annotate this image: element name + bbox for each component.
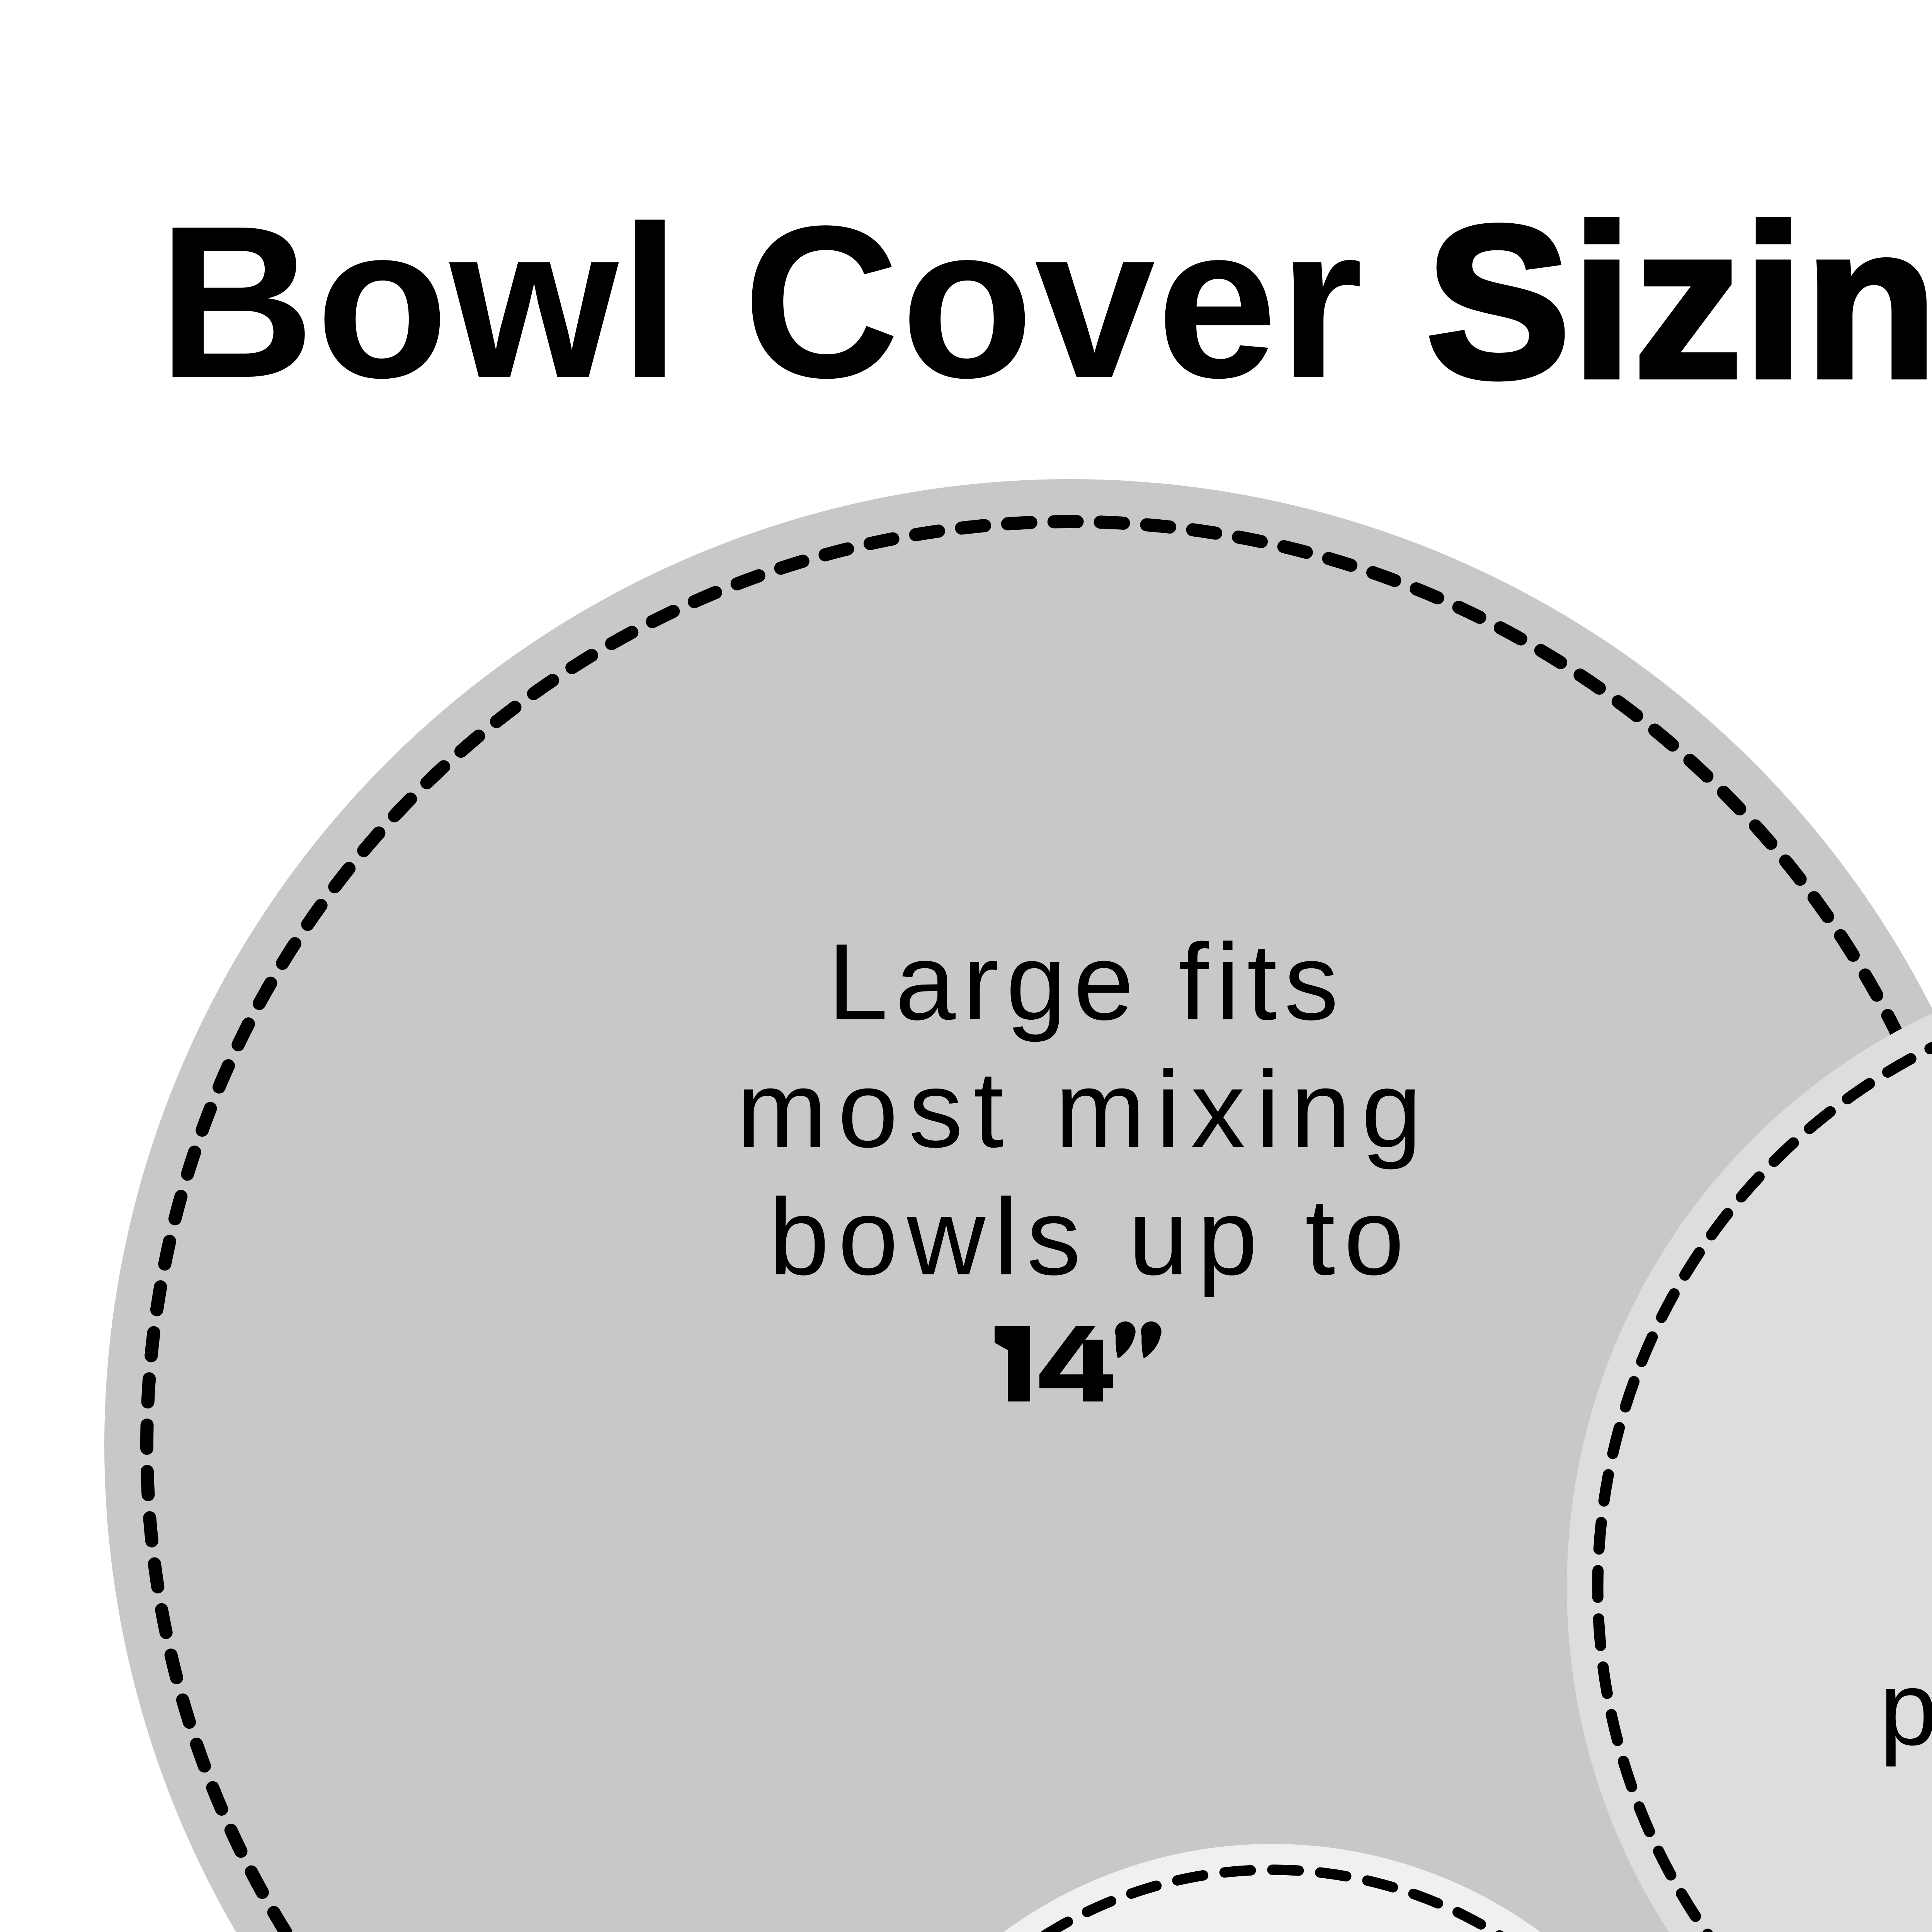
svg-text:Large fits: Large fits <box>828 921 1338 1043</box>
svg-text:most mixing: most mixing <box>737 1049 1422 1170</box>
svg-text:Bowl Cover Sizing Guide: Bowl Cover Sizing Guide <box>158 180 1932 424</box>
svg-text:plates up to: plates up to <box>1879 1650 1932 1768</box>
